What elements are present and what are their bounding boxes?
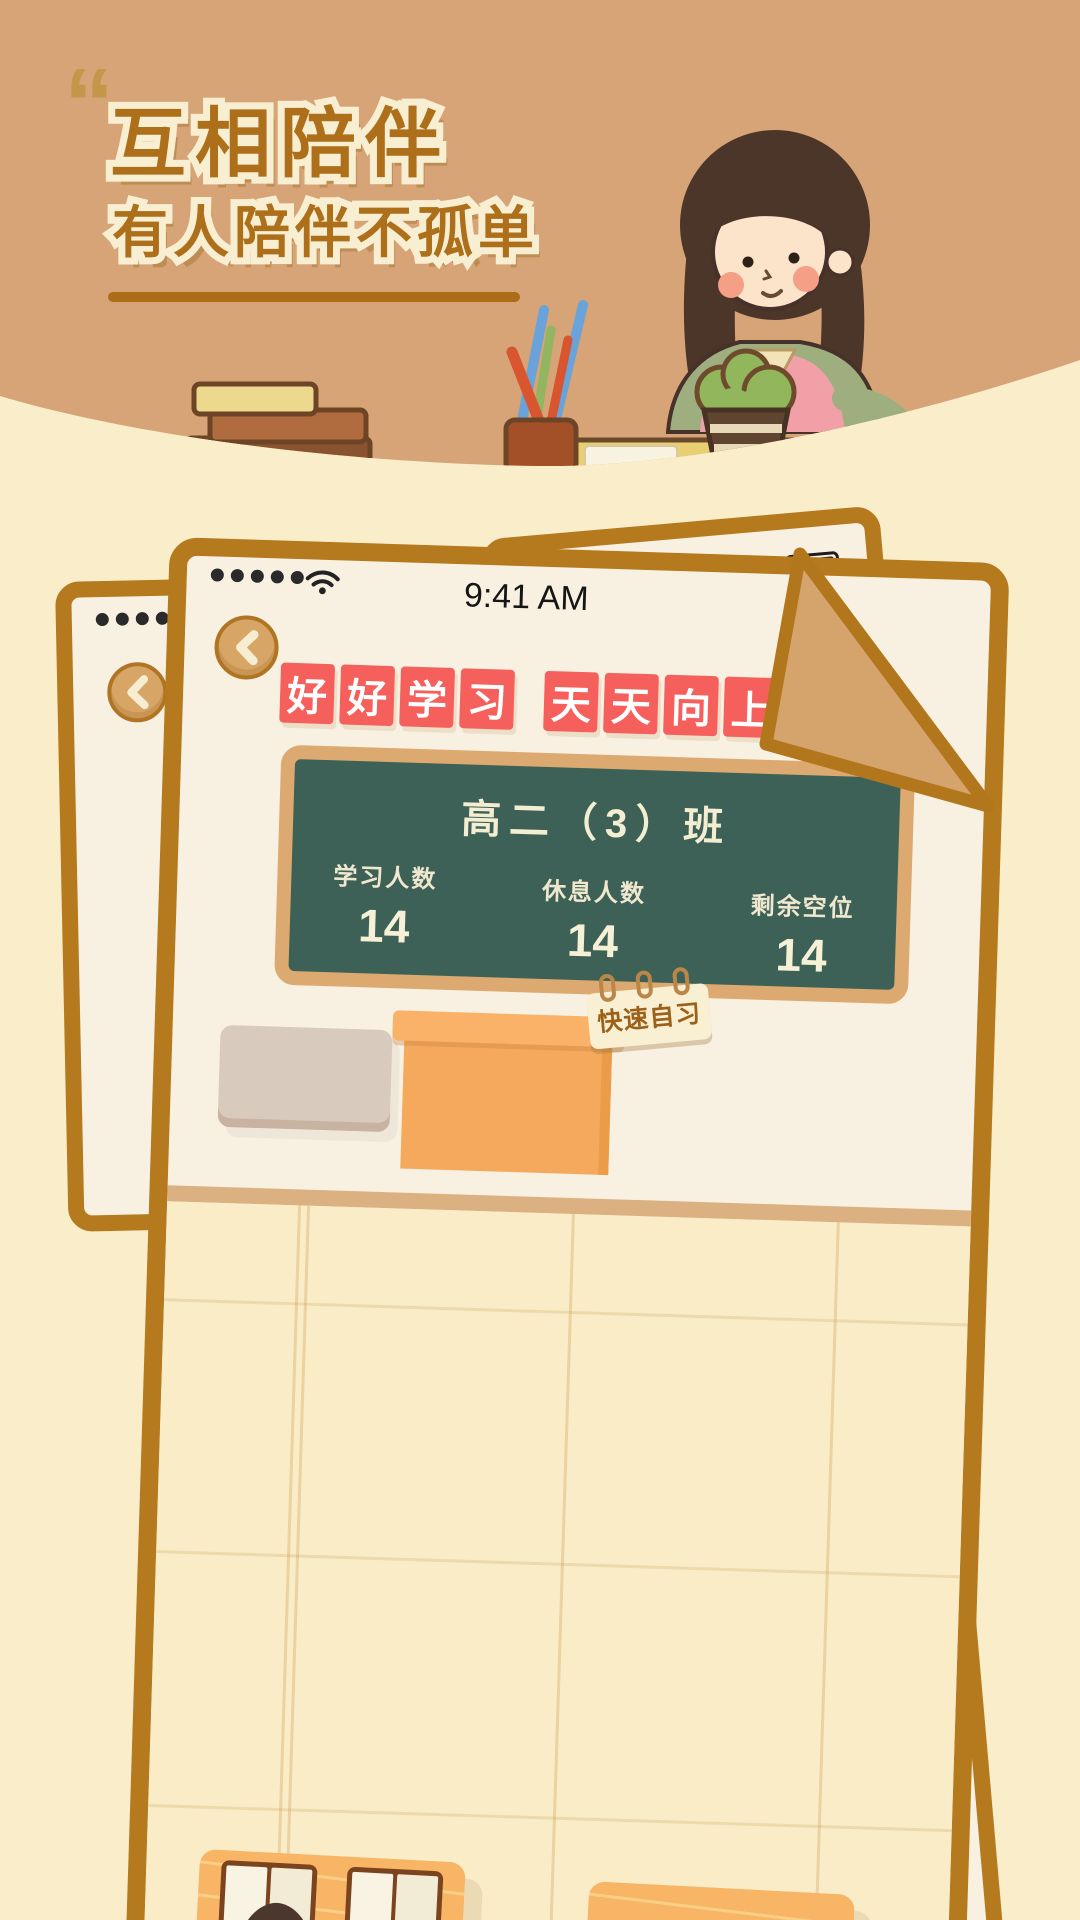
chevron-left-icon: [122, 674, 153, 711]
signal-dots-icon: [211, 568, 304, 584]
quote-mark: “: [64, 54, 114, 154]
slogan-tiles: 好好学习天天向上: [279, 663, 779, 739]
quick-study-button[interactable]: 快速自习: [586, 983, 713, 1050]
slogan-tile: 天: [603, 673, 659, 735]
wall-mat: [217, 1025, 392, 1132]
classroom-floor: [143, 1201, 970, 1920]
stat-resting: 休息人数 14: [540, 871, 647, 969]
class-stats: 学习人数 14 休息人数 14 剩余空位 14: [289, 839, 898, 969]
slogan-tile: 向: [663, 675, 719, 737]
header-banner: “ 互相陪伴 互相陪伴 有人陪伴不孤单 有人陪伴不孤单: [0, 0, 1080, 480]
app-poster: “ 互相陪伴 互相陪伴 有人陪伴不孤单 有人陪伴不孤单 100%: [0, 0, 1080, 1920]
binder-ring-icon: [598, 973, 616, 1002]
teacher-desk: [400, 1037, 612, 1175]
plant-illustration: [697, 351, 794, 466]
chalkboard: 高二（3）班 学习人数 14 休息人数 14 剩余空位 14: [274, 745, 915, 1005]
slogan-tile: 上: [723, 676, 779, 738]
slogan-tile: 学: [399, 666, 455, 728]
phone-mockup-main: 9:41 AM 好好学习天天向上 高二（3）班 学习人数 14 休息人数 14: [125, 537, 1009, 1920]
back-button[interactable]: [214, 614, 280, 680]
back-button-secondary[interactable]: [107, 662, 168, 723]
stat-studying: 学习人数 14: [331, 856, 438, 954]
wifi-icon: [304, 567, 341, 596]
desk-r1-right[interactable]: [582, 1881, 855, 1920]
binder-ring-icon: [635, 970, 653, 999]
subtitle-underline: [108, 292, 520, 302]
chevron-left-icon: [230, 628, 263, 667]
slogan-tile: 好: [339, 664, 395, 726]
slogan-tile: 习: [459, 668, 515, 730]
binder-ring-icon: [672, 967, 690, 996]
desk-surface: [582, 1881, 855, 1920]
stat-seats-left: 剩余空位 14: [748, 885, 855, 983]
status-time: 9:41 AM: [426, 575, 627, 620]
slogan-tile: 天: [543, 671, 599, 733]
slogan-tile: 好: [279, 663, 335, 725]
desk-r1-left[interactable]: [193, 1849, 466, 1920]
